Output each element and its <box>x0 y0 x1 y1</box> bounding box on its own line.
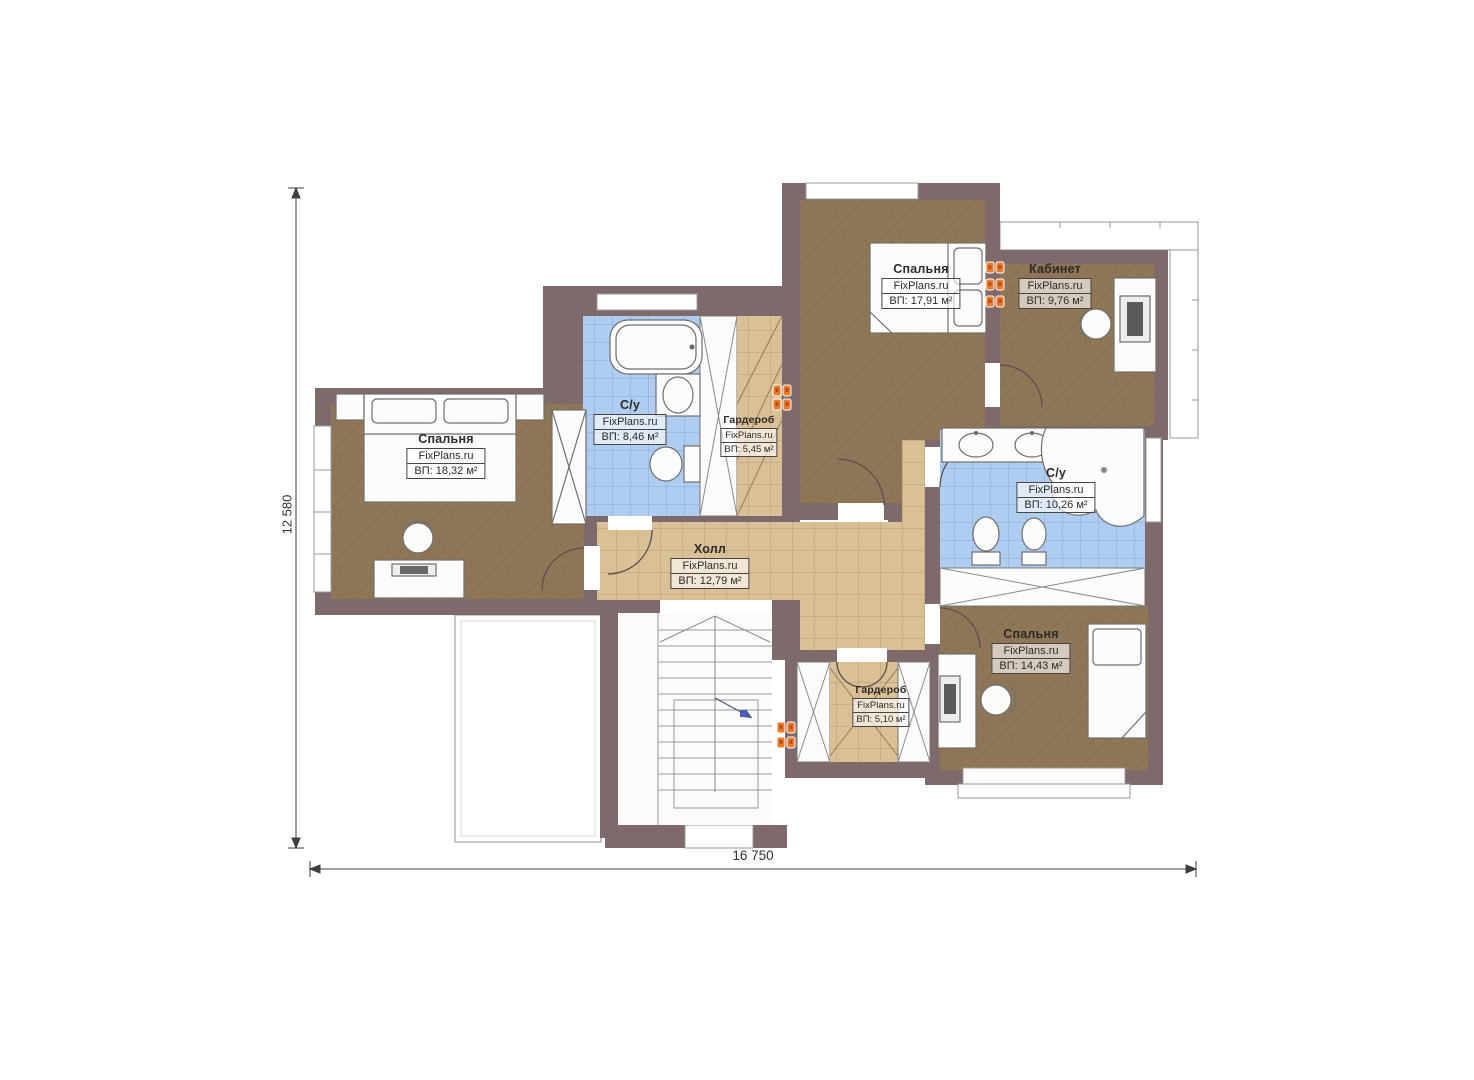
pillow-icon <box>444 399 508 423</box>
room-area: ВП: 10,26 м² <box>1017 498 1094 512</box>
room-name: Холл <box>670 542 749 556</box>
window-bathroom-top <box>597 294 697 310</box>
floor-hall-corridor <box>902 440 925 522</box>
room-name: Спальня <box>991 627 1070 641</box>
room-label-wardrobe-top: Гардероб FixPlans.ru ВП: 5,45 м² <box>720 414 777 457</box>
chair-icon <box>1081 309 1111 339</box>
window-bedroom-top <box>806 183 918 199</box>
watermark: FixPlans.ru <box>721 429 776 443</box>
wall-stairwell-west <box>600 613 618 838</box>
floor-plan-canvas: Спальня FixPlans.ru ВП: 18,32 м² С/у Fix… <box>0 0 1474 1080</box>
room-info-box: FixPlans.ru ВП: 18,32 м² <box>406 448 485 479</box>
toilet-icon <box>650 447 682 481</box>
toilet-icon <box>973 517 999 551</box>
computer-icon <box>1127 302 1143 336</box>
watermark: FixPlans.ru <box>671 559 748 574</box>
watermark: FixPlans.ru <box>594 415 665 430</box>
floor-plan-svg <box>0 0 1474 1080</box>
window-bedroom-bottom <box>963 768 1125 784</box>
watermark: FixPlans.ru <box>407 449 484 464</box>
room-area: ВП: 9,76 м² <box>1019 294 1090 308</box>
room-area: ВП: 5,45 м² <box>721 443 776 456</box>
nightstand-icon <box>336 394 364 420</box>
room-name: Спальня <box>881 262 960 276</box>
nightstand-icon <box>516 394 544 420</box>
sink-icon <box>959 433 993 457</box>
room-label-wardrobe-bottom: Гардероб FixPlans.ru ВП: 5,10 м² <box>852 684 909 727</box>
wall-hall-pillar <box>772 598 800 660</box>
room-name: С/у <box>1016 466 1095 480</box>
room-area: ВП: 12,79 м² <box>671 574 748 588</box>
room-name: С/у <box>593 398 666 412</box>
window-bedroom-left <box>314 426 331 592</box>
dimension-width-label: 16 750 <box>732 848 773 863</box>
pillow-icon <box>372 399 436 423</box>
bathtub-icon <box>610 320 702 374</box>
room-label-bedroom-bottom: Спальня FixPlans.ru ВП: 14,43 м² <box>991 627 1070 674</box>
window-bathroom-right <box>1146 438 1161 522</box>
room-label-office: Кабинет FixPlans.ru ВП: 9,76 м² <box>1018 262 1091 309</box>
room-area: ВП: 8,46 м² <box>594 430 665 444</box>
closet-band-right <box>940 568 1145 606</box>
bidet-icon <box>1022 518 1046 550</box>
room-info-box: FixPlans.ru ВП: 14,43 м² <box>991 643 1070 674</box>
wall-hall-south <box>597 598 660 614</box>
chair-icon <box>981 685 1011 715</box>
stairs <box>618 613 772 825</box>
watermark: FixPlans.ru <box>1017 483 1094 498</box>
watermark: FixPlans.ru <box>882 279 959 294</box>
door-gap-bedroom-top <box>838 503 884 520</box>
room-area: ВП: 5,10 м² <box>853 713 908 726</box>
terrace <box>455 615 601 842</box>
computer-icon <box>944 684 956 714</box>
room-info-box: FixPlans.ru ВП: 5,10 м² <box>852 698 909 727</box>
room-info-box: FixPlans.ru ВП: 10,26 м² <box>1016 482 1095 513</box>
door-terrace <box>685 825 753 848</box>
door-gap-wardrobe-bottom <box>837 648 887 662</box>
toilet-tank-icon <box>684 446 700 482</box>
room-area: ВП: 18,32 м² <box>407 464 484 478</box>
room-info-box: FixPlans.ru ВП: 9,76 м² <box>1018 278 1091 309</box>
stairwell <box>618 613 772 825</box>
watermark: FixPlans.ru <box>992 644 1069 659</box>
room-area: ВП: 14,43 м² <box>992 659 1069 673</box>
balcony-bedroom-bottom <box>958 784 1130 798</box>
floor-hall-extension <box>800 600 925 650</box>
pillow-icon <box>1093 629 1141 665</box>
room-info-box: FixPlans.ru ВП: 8,46 м² <box>593 414 666 445</box>
watermark: FixPlans.ru <box>1019 279 1090 294</box>
room-info-box: FixPlans.ru ВП: 12,79 м² <box>670 558 749 589</box>
bidet-tank-icon <box>1022 552 1046 565</box>
stair-marker <box>740 710 747 717</box>
room-info-box: FixPlans.ru ВП: 17,91 м² <box>881 278 960 309</box>
door-gap-bathroom-top <box>608 516 652 530</box>
room-area: ВП: 17,91 м² <box>882 294 959 308</box>
toilet-tank-icon <box>972 552 1000 565</box>
chair-icon <box>403 523 433 553</box>
floor-hall <box>597 522 925 600</box>
room-label-bathroom-top: С/у FixPlans.ru ВП: 8,46 м² <box>593 398 666 445</box>
dimension-height-label: 12 580 <box>280 485 295 545</box>
room-label-bedroom-left: Спальня FixPlans.ru ВП: 18,32 м² <box>406 432 485 479</box>
room-name: Спальня <box>406 432 485 446</box>
watermark: FixPlans.ru <box>853 699 908 713</box>
door-gap-bathroom-right <box>925 447 940 487</box>
room-label-bathroom-right: С/у FixPlans.ru ВП: 10,26 м² <box>1016 466 1095 513</box>
sink-icon <box>663 377 693 413</box>
room-name: Кабинет <box>1018 262 1091 276</box>
room-info-box: FixPlans.ru ВП: 5,45 м² <box>720 428 777 457</box>
door-gap-office <box>985 363 1000 407</box>
room-label-bedroom-top: Спальня FixPlans.ru ВП: 17,91 м² <box>881 262 960 309</box>
terrace-floor <box>455 615 601 842</box>
door-gap-bedroom-bottom <box>925 604 940 644</box>
door-gap-bedroom-left <box>584 546 600 590</box>
room-name: Гардероб <box>852 684 909 696</box>
room-label-hall: Холл FixPlans.ru ВП: 12,79 м² <box>670 542 749 589</box>
room-name: Гардероб <box>720 414 777 426</box>
